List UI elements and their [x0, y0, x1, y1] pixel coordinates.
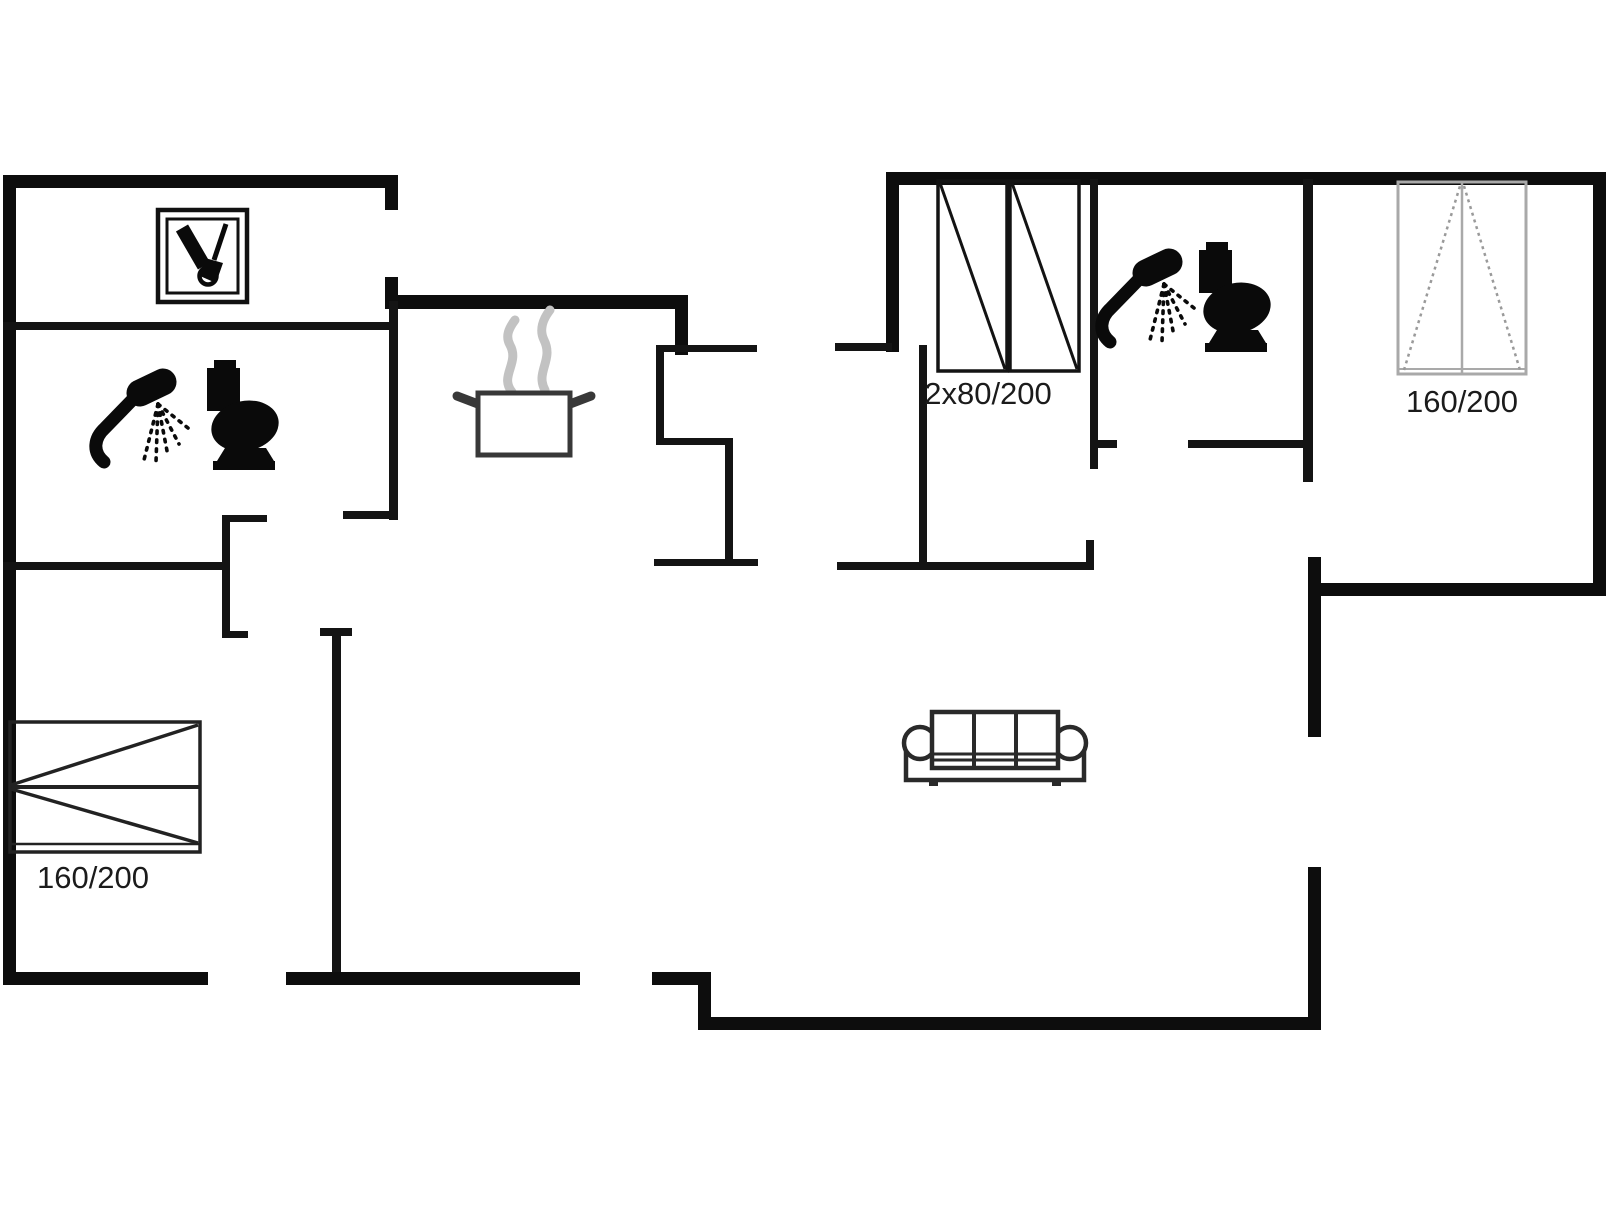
shower-icon: [96, 382, 188, 462]
interior-wall-segment: [332, 628, 341, 972]
shower-spray: [156, 404, 158, 462]
outer-wall-segment: [1593, 175, 1606, 596]
floor-plan-svg: 2x80/200160/200160/200: [0, 0, 1606, 1205]
bed-right-size-label: 160/200: [1406, 384, 1518, 419]
stove-pot-icon: [457, 310, 591, 455]
interior-wall-segment: [656, 345, 757, 352]
wardrobe-door-diagonal: [940, 183, 1005, 369]
wardrobe-icon: [938, 181, 1079, 371]
shower-handle: [1102, 274, 1144, 342]
outer-wall-segment: [385, 295, 688, 309]
interior-wall-segment: [3, 562, 223, 570]
interior-wall-segment: [725, 438, 733, 566]
interior-wall-segment: [3, 322, 395, 330]
outer-wall-segment: [3, 175, 397, 188]
toilet-icon: [1199, 242, 1276, 352]
interior-wall-segment: [222, 515, 230, 638]
interior-wall-segment: [656, 438, 733, 445]
steam-icon: [508, 320, 515, 392]
outer-wall-segment: [1308, 867, 1321, 1030]
floor-plan-canvas: 2x80/200160/200160/200: [0, 0, 1606, 1205]
outer-wall-segment: [286, 972, 580, 985]
wardrobe-door-diagonal: [1012, 183, 1077, 369]
double-bed-icon: [10, 722, 200, 852]
steam-icon: [542, 310, 550, 390]
interior-wall-segment: [656, 345, 664, 445]
interior-wall-segment: [654, 559, 758, 566]
interior-wall-segment: [1086, 540, 1094, 570]
interior-wall-segment: [1188, 440, 1310, 448]
outer-wall-segment: [3, 972, 208, 985]
outer-wall-segment: [385, 175, 398, 210]
outer-wall-segment: [698, 1017, 1321, 1030]
shower-head: [140, 382, 163, 393]
shower-handle: [96, 394, 138, 462]
double-bed-icon: [1398, 182, 1526, 374]
interior-wall-segment: [222, 631, 248, 638]
bed-left-size-label: 160/200: [37, 860, 149, 895]
shower-head: [1146, 262, 1169, 273]
interior-wall-segment: [835, 343, 892, 351]
shower-icon: [1102, 262, 1194, 342]
wardrobe-size-label: 2x80/200: [924, 376, 1052, 411]
utility-cabinet-icon: [158, 210, 247, 302]
outer-wall-segment: [3, 175, 16, 985]
interior-wall-segment: [389, 301, 398, 520]
interior-wall-segment: [837, 562, 1093, 570]
interior-wall-segment: [1303, 179, 1313, 482]
toilet-icon: [207, 360, 284, 470]
outer-wall-segment: [886, 172, 899, 352]
shower-spray: [1162, 284, 1164, 342]
sofa-icon: [904, 712, 1086, 786]
outer-wall-segment: [1308, 583, 1606, 596]
interior-wall-segment: [1090, 440, 1117, 448]
interior-wall-segment: [343, 511, 398, 519]
